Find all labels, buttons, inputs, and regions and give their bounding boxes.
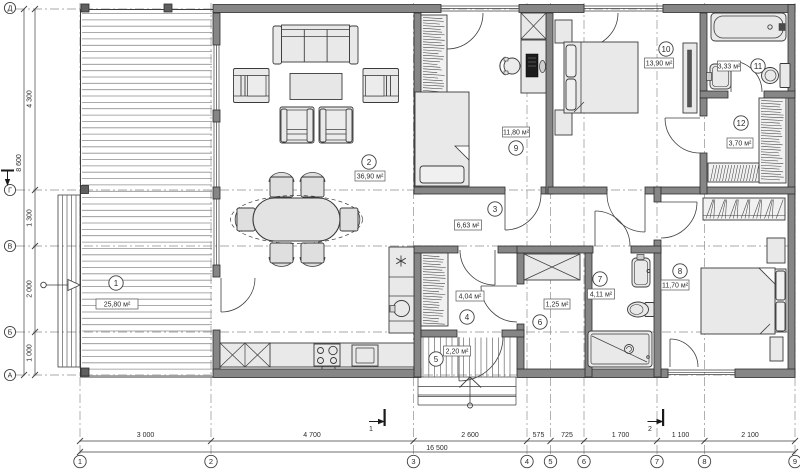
svg-text:36,90 м²: 36,90 м² <box>357 174 384 181</box>
svg-text:1 000: 1 000 <box>27 344 34 362</box>
svg-text:725: 725 <box>561 432 573 439</box>
svg-text:11,70 м²: 11,70 м² <box>662 283 689 290</box>
svg-text:13,90 м²: 13,90 м² <box>646 61 673 68</box>
svg-text:4 300: 4 300 <box>27 90 34 108</box>
svg-text:5: 5 <box>434 355 439 364</box>
svg-text:2 100: 2 100 <box>741 432 759 439</box>
svg-text:Б: Б <box>8 330 13 337</box>
svg-text:7: 7 <box>598 275 603 284</box>
svg-text:1: 1 <box>78 457 82 466</box>
svg-text:5: 5 <box>548 457 552 466</box>
svg-text:4: 4 <box>525 457 529 466</box>
svg-text:7: 7 <box>655 457 659 466</box>
svg-text:575: 575 <box>533 432 545 439</box>
svg-text:В: В <box>8 244 13 251</box>
svg-text:3: 3 <box>411 457 415 466</box>
svg-text:1 100: 1 100 <box>672 432 690 439</box>
svg-text:1: 1 <box>369 426 373 433</box>
svg-text:2: 2 <box>367 158 372 167</box>
svg-text:6,63 м²: 6,63 м² <box>457 223 480 230</box>
svg-text:8: 8 <box>702 457 706 466</box>
svg-text:12: 12 <box>737 119 746 128</box>
svg-text:4: 4 <box>465 313 470 322</box>
svg-text:25,80 м²: 25,80 м² <box>104 302 131 309</box>
svg-text:8 600: 8 600 <box>16 154 23 172</box>
svg-text:3 000: 3 000 <box>137 432 155 439</box>
svg-text:1 700: 1 700 <box>612 432 630 439</box>
svg-text:4,04 м²: 4,04 м² <box>459 294 482 301</box>
svg-text:3: 3 <box>493 205 498 214</box>
svg-text:Г: Г <box>8 188 12 195</box>
svg-text:10: 10 <box>662 45 671 54</box>
svg-text:1 300: 1 300 <box>27 209 34 227</box>
svg-text:2,20 м²: 2,20 м² <box>446 349 469 356</box>
svg-text:1,25 м²: 1,25 м² <box>546 302 569 309</box>
svg-text:2 000: 2 000 <box>27 280 34 298</box>
svg-text:9: 9 <box>514 144 519 153</box>
svg-text:4,11 м²: 4,11 м² <box>590 292 613 299</box>
svg-text:2: 2 <box>648 426 652 433</box>
svg-text:3,33 м²: 3,33 м² <box>718 64 741 71</box>
svg-text:6: 6 <box>538 318 543 327</box>
svg-text:А: А <box>8 373 13 380</box>
svg-text:2 600: 2 600 <box>461 432 479 439</box>
svg-text:9: 9 <box>793 457 797 466</box>
svg-text:6: 6 <box>582 457 586 466</box>
svg-text:Д: Д <box>8 6 13 13</box>
svg-text:8: 8 <box>678 267 683 276</box>
svg-text:4 700: 4 700 <box>303 432 321 439</box>
svg-text:11,80 м²: 11,80 м² <box>503 130 530 137</box>
svg-text:16 500: 16 500 <box>426 445 448 452</box>
svg-text:1: 1 <box>114 279 119 288</box>
svg-text:2: 2 <box>209 457 213 466</box>
svg-text:3,70 м²: 3,70 м² <box>729 141 752 148</box>
svg-text:11: 11 <box>754 62 763 71</box>
